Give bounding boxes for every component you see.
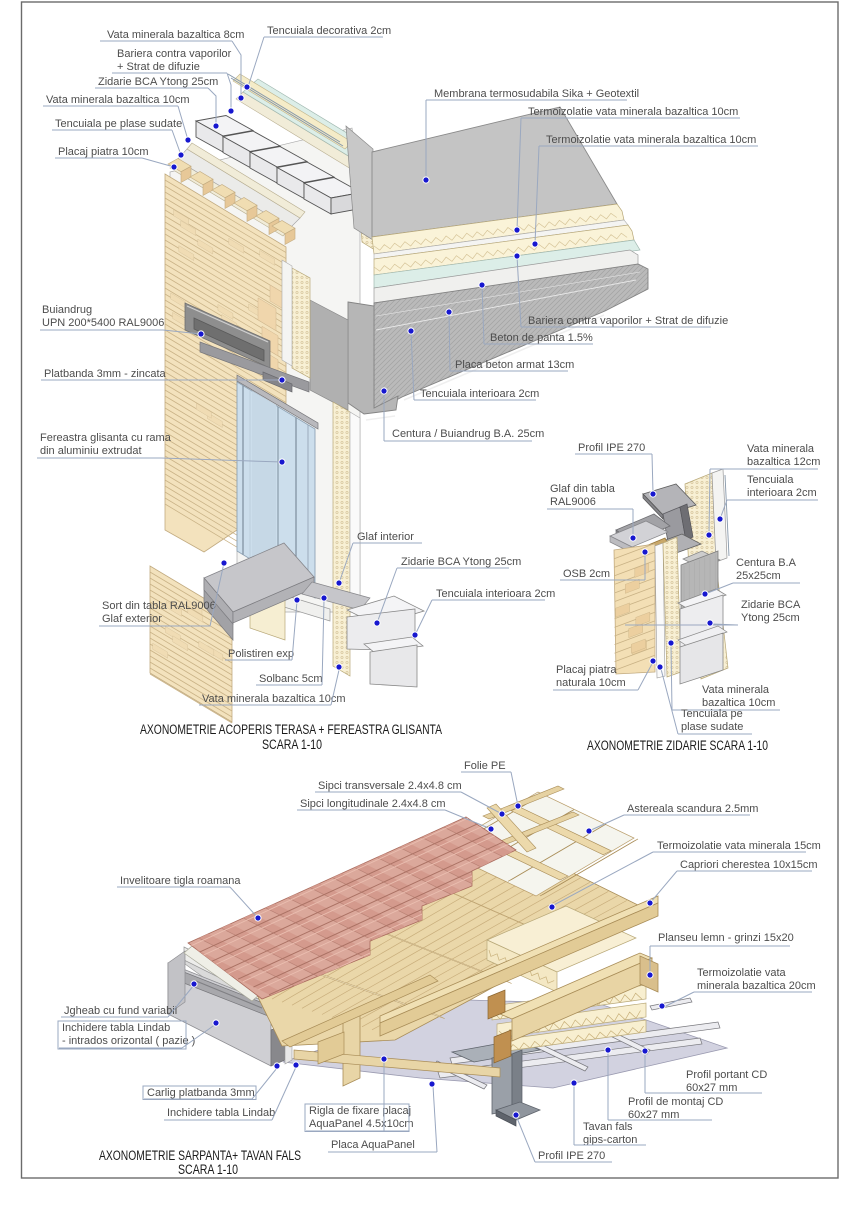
svg-text:Termoizolatie vata minerala 15: Termoizolatie vata minerala 15cm (657, 840, 821, 852)
svg-text:Profil IPE 270: Profil IPE 270 (538, 1150, 605, 1162)
svg-text:Sipci transversale 2.4x4.8 cm: Sipci transversale 2.4x4.8 cm (318, 780, 462, 792)
svg-text:Glaf interior: Glaf interior (357, 531, 414, 543)
svg-text:Tencuiala interioara 2cm: Tencuiala interioara 2cm (420, 388, 539, 400)
svg-text:Folie PE: Folie PE (464, 760, 506, 772)
svg-text:Vata minerala: Vata minerala (702, 684, 770, 696)
svg-text:Tencuiala decorativa 2cm: Tencuiala decorativa 2cm (267, 25, 391, 37)
svg-text:Placaj piatra 10cm: Placaj piatra 10cm (58, 146, 149, 158)
svg-text:Placaj piatra: Placaj piatra (556, 664, 617, 676)
svg-text:Zidarie BCA: Zidarie BCA (741, 599, 801, 611)
svg-text:plase sudate: plase sudate (681, 721, 743, 733)
svg-text:Platbanda 3mm - zincata: Platbanda 3mm - zincata (44, 368, 167, 380)
svg-text:Placa beton armat 13cm: Placa beton armat 13cm (455, 359, 574, 371)
svg-text:Invelitoare tigla roamana: Invelitoare tigla roamana (120, 875, 241, 887)
svg-text:din aluminiu extrudat: din aluminiu extrudat (40, 445, 142, 457)
svg-text:UPN 200*5400 RAL9006: UPN 200*5400 RAL9006 (42, 317, 164, 329)
svg-text:Fereastra glisanta cu rama: Fereastra glisanta cu rama (40, 432, 172, 444)
svg-text:Glaf din tabla: Glaf din tabla (550, 483, 616, 495)
svg-text:Tencuiala pe: Tencuiala pe (681, 708, 743, 720)
svg-text:+ Strat de difuzie: + Strat de difuzie (117, 61, 200, 73)
svg-text:Bariera contra vaporilor + Str: Bariera contra vaporilor + Strat de difu… (528, 315, 728, 327)
svg-text:Jgheab cu fund variabil: Jgheab cu fund variabil (64, 1005, 177, 1017)
svg-text:Zidarie BCA Ytong 25cm: Zidarie BCA Ytong 25cm (98, 76, 218, 88)
svg-text:Termoizolatie vata minerala ba: Termoizolatie vata minerala bazaltica 10… (528, 106, 738, 118)
svg-text:Placa AquaPanel: Placa AquaPanel (331, 1139, 415, 1151)
svg-text:Rigla de fixare placaj: Rigla de fixare placaj (309, 1105, 411, 1117)
svg-text:Polistiren exp: Polistiren exp (228, 648, 294, 660)
svg-text:Tencuiala: Tencuiala (747, 474, 794, 486)
svg-text:Vata minerala bazaltica 8cm: Vata minerala bazaltica 8cm (107, 29, 244, 41)
svg-text:SCARA 1-10: SCARA 1-10 (262, 737, 322, 752)
svg-text:Profil IPE 270: Profil IPE 270 (578, 442, 645, 454)
svg-text:AXONOMETRIE SARPANTA+ TAVAN FA: AXONOMETRIE SARPANTA+ TAVAN FALS (99, 1148, 301, 1163)
svg-text:Planseu lemn - grinzi 15x20: Planseu lemn - grinzi 15x20 (658, 932, 794, 944)
svg-text:Sipci longitudinale 2.4x4.8 cm: Sipci longitudinale 2.4x4.8 cm (300, 798, 446, 810)
svg-text:AquaPanel 4.5x10cm: AquaPanel 4.5x10cm (309, 1118, 414, 1130)
svg-text:minerala bazaltica 20cm: minerala bazaltica 20cm (697, 980, 816, 992)
svg-text:Centura / Buiandrug B.A. 25cm: Centura / Buiandrug B.A. 25cm (392, 428, 544, 440)
svg-text:interioara 2cm: interioara 2cm (747, 487, 817, 499)
svg-text:Zidarie BCA Ytong 25cm: Zidarie BCA Ytong 25cm (401, 556, 521, 568)
svg-text:Bariera contra vaporilor: Bariera contra vaporilor (117, 48, 232, 60)
svg-text:Membrana termosudabila Sika +: Membrana termosudabila Sika + Geotextil (434, 88, 639, 100)
svg-text:Tencuiala interioara 2cm: Tencuiala interioara 2cm (436, 588, 555, 600)
svg-text:Profil portant CD: Profil portant CD (686, 1069, 767, 1081)
svg-text:gips-carton: gips-carton (583, 1134, 637, 1146)
svg-text:Ytong 25cm: Ytong 25cm (741, 612, 800, 624)
svg-text:Inchidere tabla Lindab: Inchidere tabla Lindab (62, 1022, 170, 1034)
svg-text:AXONOMETRIE ACOPERIS TERASA +: AXONOMETRIE ACOPERIS TERASA + FEREASTRA … (140, 722, 442, 737)
svg-text:Vata minerala: Vata minerala (747, 443, 815, 455)
svg-text:RAL9006: RAL9006 (550, 496, 596, 508)
svg-text:AXONOMETRIE ZIDARIE SCARA 1-1: AXONOMETRIE ZIDARIE SCARA 1-10 (587, 738, 768, 753)
svg-text:Termoizolatie vata minerala ba: Termoizolatie vata minerala bazaltica 10… (546, 134, 756, 146)
svg-text:Inchidere tabla Lindab: Inchidere tabla Lindab (167, 1107, 275, 1119)
svg-text:Tencuiala pe plase sudate: Tencuiala pe plase sudate (55, 118, 182, 130)
svg-text:SCARA 1-10: SCARA 1-10 (178, 1162, 238, 1177)
svg-text:Sort din tabla RAL9006: Sort din tabla RAL9006 (102, 600, 216, 612)
svg-text:Glaf exterior: Glaf exterior (102, 613, 162, 625)
svg-text:Astereala scandura 2.5mm: Astereala scandura 2.5mm (627, 803, 758, 815)
svg-text:bazaltica 12cm: bazaltica 12cm (747, 456, 820, 468)
svg-text:Vata minerala bazaltica 10cm: Vata minerala bazaltica 10cm (46, 94, 189, 106)
svg-text:Tavan fals: Tavan fals (583, 1121, 633, 1133)
svg-text:25x25cm: 25x25cm (736, 570, 781, 582)
svg-text:Centura B.A: Centura B.A (736, 557, 797, 569)
svg-text:Solbanc 5cm: Solbanc 5cm (259, 673, 323, 685)
svg-text:Capriori cherestea 10x15cm: Capriori cherestea 10x15cm (680, 859, 818, 871)
svg-text:Profil de montaj CD: Profil de montaj CD (628, 1096, 723, 1108)
svg-text:60x27 mm: 60x27 mm (686, 1082, 737, 1094)
svg-text:- intrados orizontal ( pazie ): - intrados orizontal ( pazie ) (62, 1035, 195, 1047)
svg-text:Termoizolatie vata: Termoizolatie vata (697, 967, 787, 979)
svg-text:Carlig platbanda 3mm: Carlig platbanda 3mm (147, 1087, 255, 1099)
svg-text:OSB 2cm: OSB 2cm (563, 568, 610, 580)
svg-text:Buiandrug: Buiandrug (42, 304, 92, 316)
svg-text:Vata minerala bazaltica 10cm: Vata minerala bazaltica 10cm (202, 693, 345, 705)
svg-text:60x27 mm: 60x27 mm (628, 1109, 679, 1121)
svg-text:naturala 10cm: naturala 10cm (556, 677, 626, 689)
svg-text:Beton de panta 1.5%: Beton de panta 1.5% (490, 332, 593, 344)
